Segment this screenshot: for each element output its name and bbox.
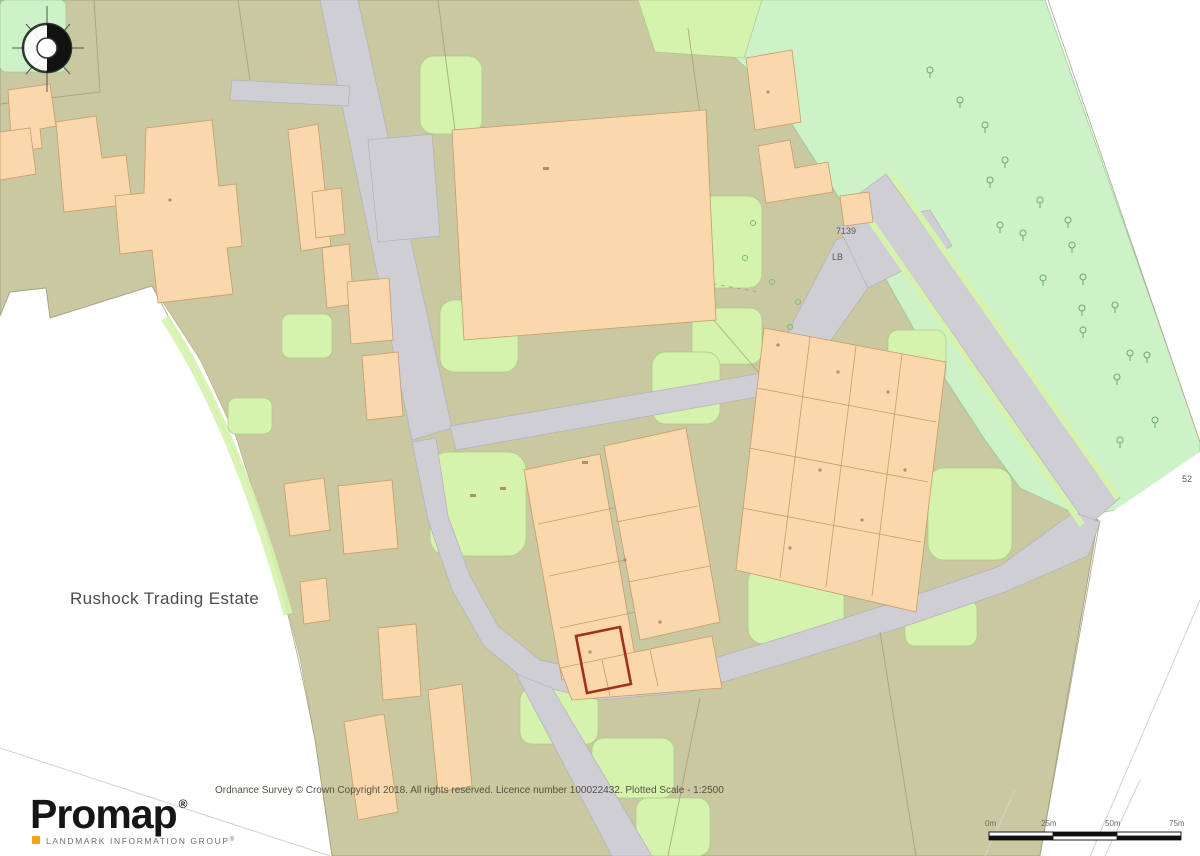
svg-text:0m: 0m	[985, 819, 996, 828]
logo-text: Promap	[30, 791, 177, 837]
building-number-label: 7139	[836, 226, 856, 236]
logo-registered-icon: ®	[179, 797, 188, 811]
copyright-text: Ordnance Survey © Crown Copyright 2018. …	[215, 785, 724, 796]
svg-text:25m: 25m	[1041, 819, 1057, 828]
svg-text:LANDMARK INFORMATION GROUP®: LANDMARK INFORMATION GROUP®	[46, 836, 236, 846]
letter-box-label: LB	[832, 252, 843, 262]
svg-text:75m: 75m	[1169, 819, 1185, 828]
map-canvas[interactable]: Rushock Trading Estate 7139 LB 52 Ordnan…	[0, 0, 1200, 856]
logo-accent-square	[32, 836, 40, 844]
svg-text:50m: 50m	[1105, 819, 1121, 828]
parcel-number-label: 52	[1182, 474, 1192, 484]
svg-text:Promap®: Promap®	[30, 791, 188, 837]
estate-name-label: Rushock Trading Estate	[70, 589, 259, 608]
